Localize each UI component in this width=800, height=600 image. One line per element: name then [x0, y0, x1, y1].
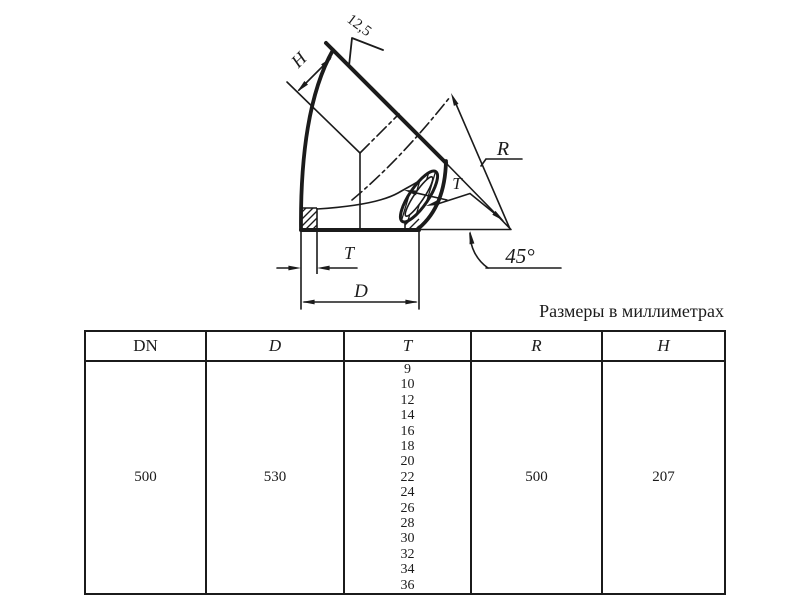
- units-note: Размеры в миллиметрах: [324, 301, 724, 322]
- construction-lines: [287, 82, 511, 230]
- col-header-h: H: [602, 331, 725, 361]
- dim-label-diameter: D: [353, 281, 368, 302]
- left-wall-section: [301, 208, 317, 274]
- col-header-d: D: [206, 331, 344, 361]
- dim-label-thickness-end: T: [452, 174, 463, 193]
- dimension-table: DN D T R H 500 530 9 10 12 14 16 18 20 2…: [84, 330, 726, 595]
- cell-r: 500: [471, 361, 602, 594]
- dim-label-thickness-bottom: T: [344, 243, 356, 263]
- dim-label-angle: 45°: [505, 244, 535, 268]
- roughness-mark: [349, 38, 383, 66]
- dim-label-height: H: [286, 47, 311, 72]
- table-row: 500 530 9 10 12 14 16 18 20 22 24 26 28 …: [85, 361, 725, 594]
- dim-label-radius: R: [496, 138, 509, 160]
- header-row: DN D T R H: [85, 331, 725, 361]
- upper-face: [326, 43, 446, 163]
- page: H 12,5 R 45° T T D Размеры в миллиметрах…: [0, 0, 800, 600]
- col-header-dn: DN: [85, 331, 206, 361]
- elbow-drawing: H 12,5 R 45° T T D: [0, 0, 800, 330]
- roughness-value: 12,5: [344, 11, 375, 40]
- arrowheads: [288, 57, 504, 304]
- cell-dn: 500: [85, 361, 206, 594]
- col-header-t: T: [344, 331, 471, 361]
- cell-h: 207: [602, 361, 725, 594]
- col-header-r: R: [471, 331, 602, 361]
- cell-d: 530: [206, 361, 344, 594]
- cell-t-values: 9 10 12 14 16 18 20 22 24 26 28 30 32 34…: [344, 361, 471, 594]
- outer-arc: [301, 50, 333, 229]
